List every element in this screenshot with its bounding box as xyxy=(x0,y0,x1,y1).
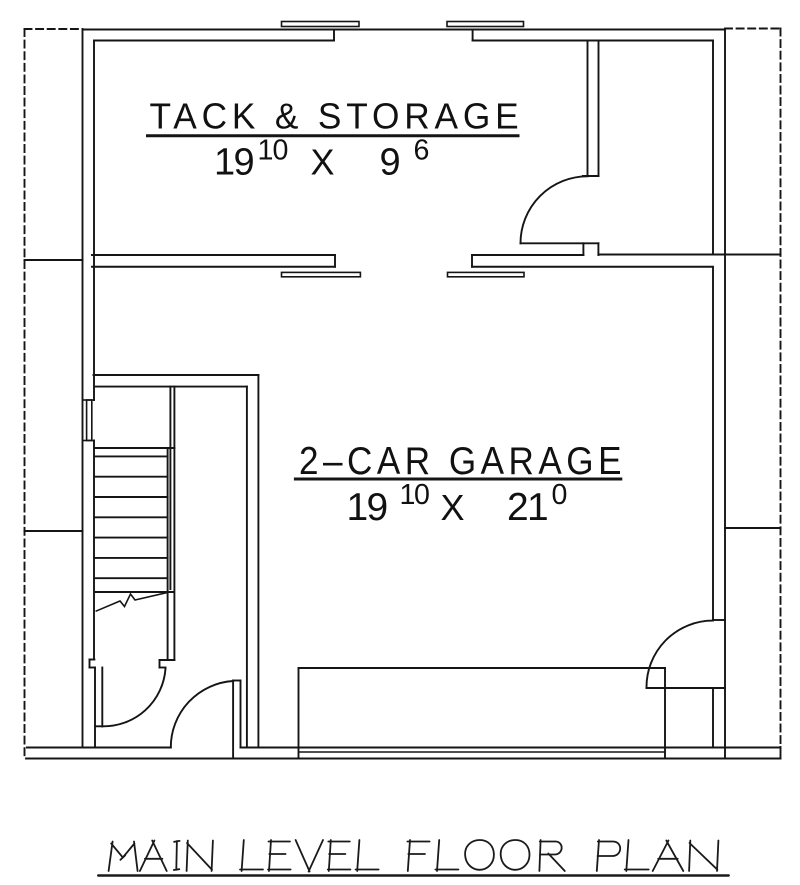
svg-text:9: 9 xyxy=(234,142,255,184)
svg-text:X: X xyxy=(441,487,465,528)
svg-text:2–CAR GARAGE: 2–CAR GARAGE xyxy=(299,440,626,483)
svg-text:TACK & STORAGE: TACK & STORAGE xyxy=(150,96,524,137)
svg-text:6: 6 xyxy=(414,134,430,166)
svg-text:1: 1 xyxy=(347,486,369,529)
svg-text:0: 0 xyxy=(273,134,289,166)
svg-text:9: 9 xyxy=(380,142,401,184)
svg-text:9: 9 xyxy=(367,486,389,529)
svg-text:X: X xyxy=(311,142,335,183)
svg-text:2: 2 xyxy=(507,486,529,529)
svg-text:1: 1 xyxy=(258,134,274,166)
svg-text:0: 0 xyxy=(552,479,568,511)
svg-text:1: 1 xyxy=(527,486,549,529)
svg-text:0: 0 xyxy=(414,479,430,511)
svg-text:1: 1 xyxy=(214,142,235,184)
